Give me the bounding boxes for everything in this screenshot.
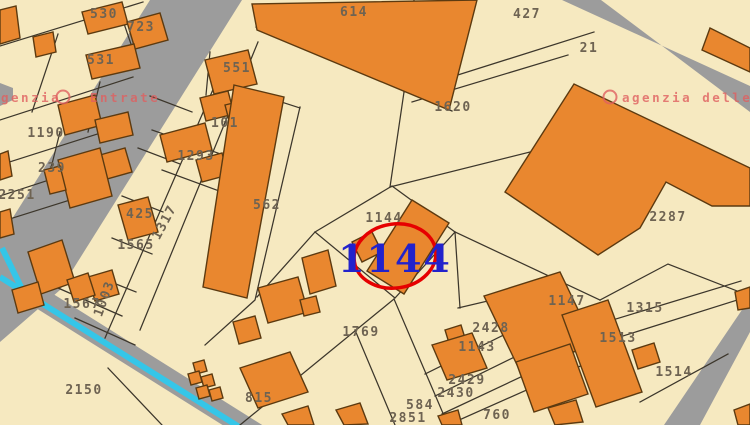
parcel-label-562: 562 [253,198,281,213]
parcel-label-1565: 1565 [117,238,154,253]
watermark-text-right: agenzia delle [622,90,750,105]
parcel-label-1769: 1769 [342,325,379,340]
parcel-label-1514: 1514 [655,365,692,380]
parcel-label-1567: 1567 [63,297,100,312]
parcel-label-2430: 2430 [437,386,474,401]
parcel-label-1315: 1315 [626,301,663,316]
parcel-label-2851: 2851 [389,411,426,425]
parcel-label-760: 760 [483,408,511,423]
parcel-label-1620: 1620 [434,100,471,115]
parcel-label-427: 427 [513,7,541,22]
parcel-label-21: 21 [580,41,599,56]
parcel-label-614: 614 [340,5,368,20]
parcel-label-239: 239 [38,161,66,176]
parcel-label-815: 815 [245,391,273,406]
watermark-text-left-1: genzia [1,90,61,105]
parcel-label-2251: 2251 [0,188,36,203]
parcel-label-425: 425 [126,207,154,222]
parcel-label-2150: 2150 [65,383,102,398]
parcel-label-1513: 1513 [599,331,636,346]
road-southeast [664,298,750,425]
parcel-label-551: 551 [223,61,251,76]
parcel-label-1190: 1190 [27,126,64,141]
highlight-parcel-number: 1144 [338,236,452,281]
parcel-label-101: 101 [211,116,239,131]
map-canvas[interactable]: 5307235311190239225142515651317100315672… [0,0,750,425]
cadastral-map-viewport: 5307235311190239225142515651317100315672… [0,0,750,425]
parcel-label-2428: 2428 [472,321,509,336]
watermark-text-left-2: Entrate [90,90,160,105]
parcel-label-1293: 1293 [177,149,214,164]
parcel-label-530: 530 [90,7,118,22]
parcel-label-1143: 1143 [458,340,495,355]
parcel-label-1147: 1147 [548,294,585,309]
parcel-label-723: 723 [127,20,155,35]
parcel-label-2287: 2287 [649,210,686,225]
watermark: genzia Entrate agenzia delle [1,90,750,105]
parcel-label-531: 531 [87,53,115,68]
